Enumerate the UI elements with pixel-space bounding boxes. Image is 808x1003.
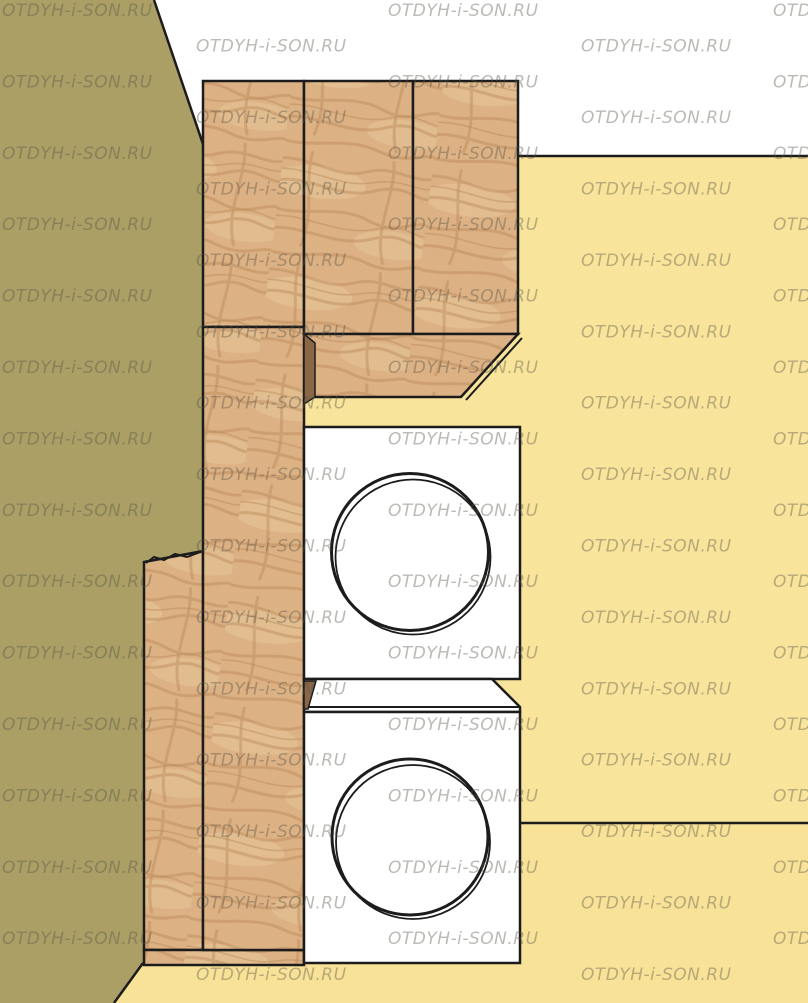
watermark-text: OTDYH-i-SON.RU bbox=[2, 786, 153, 806]
watermark-text: OTDYH-i-SON.RU bbox=[388, 72, 539, 92]
watermark-text: OTDYH-i-SON.RU bbox=[773, 572, 808, 592]
watermark-text: OTDYH-i-SON.RU bbox=[388, 929, 539, 949]
watermark-text: OTDYH-i-SON.RU bbox=[773, 358, 808, 378]
watermark-text: OTDYH-i-SON.RU bbox=[581, 108, 732, 128]
watermark-text: OTDYH-i-SON.RU bbox=[388, 572, 539, 592]
watermark-text: OTDYH-i-SON.RU bbox=[388, 858, 539, 878]
watermark-text: OTDYH-i-SON.RU bbox=[196, 180, 347, 200]
watermark-text: OTDYH-i-SON.RU bbox=[196, 465, 347, 485]
watermark-text: OTDYH-i-SON.RU bbox=[773, 644, 808, 664]
watermark-text: OTDYH-i-SON.RU bbox=[2, 72, 153, 92]
watermark-text: OTDYH-i-SON.RU bbox=[2, 144, 153, 164]
watermark-text: OTDYH-i-SON.RU bbox=[196, 394, 347, 414]
watermark-text: OTDYH-i-SON.RU bbox=[581, 465, 732, 485]
watermark-text: OTDYH-i-SON.RU bbox=[2, 644, 153, 664]
watermark-text: OTDYH-i-SON.RU bbox=[2, 929, 153, 949]
watermark-text: OTDYH-i-SON.RU bbox=[581, 894, 732, 914]
watermark-text: OTDYH-i-SON.RU bbox=[773, 858, 808, 878]
watermark-text: OTDYH-i-SON.RU bbox=[581, 394, 732, 414]
side-panel bbox=[144, 551, 203, 950]
watermark-text: OTDYH-i-SON.RU bbox=[2, 358, 153, 378]
plinth bbox=[144, 950, 304, 965]
watermark-text: OTDYH-i-SON.RU bbox=[2, 1, 153, 21]
furniture-scene-svg: OTDYH-i-SON.RUOTDYH-i-SON.RUOTDYH-i-SON.… bbox=[0, 0, 808, 1003]
watermark-text: OTDYH-i-SON.RU bbox=[581, 751, 732, 771]
watermark-text: OTDYH-i-SON.RU bbox=[2, 858, 153, 878]
watermark-text: OTDYH-i-SON.RU bbox=[581, 537, 732, 557]
watermark-text: OTDYH-i-SON.RU bbox=[773, 429, 808, 449]
watermark-text: OTDYH-i-SON.RU bbox=[773, 144, 808, 164]
watermark-text: OTDYH-i-SON.RU bbox=[196, 679, 347, 699]
watermark-text: OTDYH-i-SON.RU bbox=[2, 501, 153, 521]
watermark-text: OTDYH-i-SON.RU bbox=[773, 501, 808, 521]
scene-3d-render: OTDYH-i-SON.RUOTDYH-i-SON.RUOTDYH-i-SON.… bbox=[0, 0, 808, 1003]
watermark-text: OTDYH-i-SON.RU bbox=[773, 929, 808, 949]
watermark-text: OTDYH-i-SON.RU bbox=[2, 572, 153, 592]
watermark-text: OTDYH-i-SON.RU bbox=[581, 679, 732, 699]
watermark-text: OTDYH-i-SON.RU bbox=[581, 37, 732, 57]
watermark-text: OTDYH-i-SON.RU bbox=[196, 965, 347, 985]
watermark-text: OTDYH-i-SON.RU bbox=[581, 322, 732, 342]
watermark-text: OTDYH-i-SON.RU bbox=[2, 287, 153, 307]
watermark-text: OTDYH-i-SON.RU bbox=[196, 751, 347, 771]
watermark-text: OTDYH-i-SON.RU bbox=[388, 287, 539, 307]
watermark-text: OTDYH-i-SON.RU bbox=[773, 72, 808, 92]
watermark-text: OTDYH-i-SON.RU bbox=[581, 608, 732, 628]
watermark-text: OTDYH-i-SON.RU bbox=[196, 822, 347, 842]
watermark-text: OTDYH-i-SON.RU bbox=[388, 429, 539, 449]
watermark-text: OTDYH-i-SON.RU bbox=[196, 108, 347, 128]
watermark-text: OTDYH-i-SON.RU bbox=[196, 537, 347, 557]
watermark-text: OTDYH-i-SON.RU bbox=[196, 894, 347, 914]
watermark-text: OTDYH-i-SON.RU bbox=[388, 215, 539, 235]
watermark-text: OTDYH-i-SON.RU bbox=[581, 251, 732, 271]
watermark-text: OTDYH-i-SON.RU bbox=[581, 822, 732, 842]
watermark-text: OTDYH-i-SON.RU bbox=[388, 786, 539, 806]
watermark-text: OTDYH-i-SON.RU bbox=[196, 322, 347, 342]
watermark-text: OTDYH-i-SON.RU bbox=[388, 144, 539, 164]
watermark-text: OTDYH-i-SON.RU bbox=[773, 1, 808, 21]
watermark-text: OTDYH-i-SON.RU bbox=[196, 608, 347, 628]
watermark-text: OTDYH-i-SON.RU bbox=[2, 429, 153, 449]
watermark-text: OTDYH-i-SON.RU bbox=[2, 715, 153, 735]
watermark-text: OTDYH-i-SON.RU bbox=[196, 251, 347, 271]
watermark-text: OTDYH-i-SON.RU bbox=[388, 644, 539, 664]
watermark-text: OTDYH-i-SON.RU bbox=[388, 1, 539, 21]
watermark-text: OTDYH-i-SON.RU bbox=[773, 215, 808, 235]
watermark-text: OTDYH-i-SON.RU bbox=[581, 180, 732, 200]
watermark-text: OTDYH-i-SON.RU bbox=[388, 501, 539, 521]
watermark-text: OTDYH-i-SON.RU bbox=[773, 287, 808, 307]
watermark-text: OTDYH-i-SON.RU bbox=[388, 358, 539, 378]
watermark-text: OTDYH-i-SON.RU bbox=[581, 965, 732, 985]
watermark-text: OTDYH-i-SON.RU bbox=[2, 215, 153, 235]
watermark-text: OTDYH-i-SON.RU bbox=[773, 786, 808, 806]
tall-cabinet-lower-door bbox=[203, 327, 304, 950]
watermark-text: OTDYH-i-SON.RU bbox=[196, 37, 347, 57]
watermark-text: OTDYH-i-SON.RU bbox=[773, 715, 808, 735]
watermark-text: OTDYH-i-SON.RU bbox=[388, 715, 539, 735]
